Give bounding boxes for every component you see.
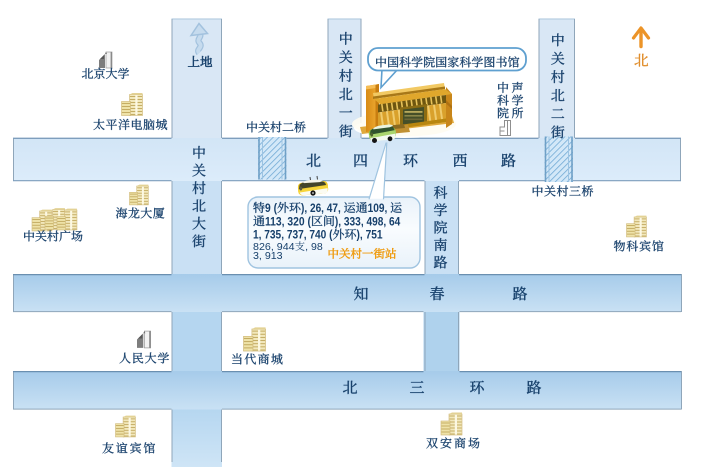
svg-text:1, 735, 737, 740 (: 1, 735, 737, 740 ( — [253, 228, 333, 242]
svg-text:), 26, 47,: ), 26, 47, — [301, 201, 344, 215]
svg-text:3, 913: 3, 913 — [253, 250, 283, 262]
svg-text:, 98: , 98 — [305, 241, 323, 253]
svg-text:113, 320 (: 113, 320 ( — [265, 214, 311, 228]
svg-text:109,: 109, — [368, 201, 391, 215]
svg-text:), 333, 498, 64: ), 333, 498, 64 — [335, 214, 401, 228]
svg-text:9 (: 9 ( — [265, 201, 277, 215]
svg-text:), 751: ), 751 — [357, 228, 383, 242]
